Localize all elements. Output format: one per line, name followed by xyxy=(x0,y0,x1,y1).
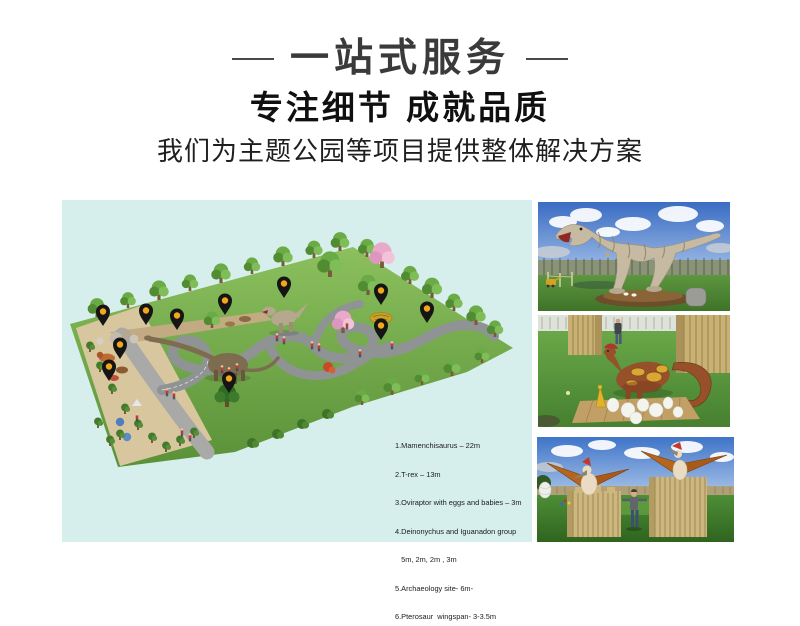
page: 一站式服务 专注细节 成就品质 我们为主题公园等项目提供整体解决方案 xyxy=(0,0,800,626)
tree-row xyxy=(538,260,730,276)
photo-trex xyxy=(538,202,730,311)
section-tagline: 我们为主题公园等项目提供整体解决方案 xyxy=(0,137,800,166)
title-right-rule xyxy=(526,58,568,60)
legend-item: 3.Oviraptor with eggs and babies – 3m xyxy=(395,498,531,508)
wood-pole-left xyxy=(568,315,602,355)
section-title-row: 一站式服务 xyxy=(0,38,800,81)
legend-item: 6.Pterosaur wingspan- 3-3.5m xyxy=(395,612,531,622)
legend-item: 5m, 2m, 2m , 3m xyxy=(395,555,531,565)
legend-item: 5.Archaeology site- 6m- xyxy=(395,584,531,594)
post-tower-right xyxy=(649,477,707,537)
section-subtitle: 专注细节 成就品质 xyxy=(0,90,800,126)
park-plan-image: 1.Mamenchisaurus – 22m 2.T-rex – 13m 3.O… xyxy=(62,200,532,542)
bright-horizon xyxy=(538,315,683,331)
title-left-rule xyxy=(232,58,274,60)
legend-item: 2.T-rex – 13m xyxy=(395,470,531,480)
rock xyxy=(686,288,706,306)
header: 一站式服务 专注细节 成就品质 我们为主题公园等项目提供整体解决方案 xyxy=(0,0,800,166)
legend-item: 4.Deinonychus and Iguanadon group xyxy=(395,527,531,537)
egg-sculpture xyxy=(539,482,551,498)
photo-dinosaur-eggs xyxy=(538,315,730,427)
legend-item: 1.Mamenchisaurus – 22m xyxy=(395,441,531,451)
flower xyxy=(566,391,570,395)
section-title: 一站式服务 xyxy=(290,38,510,81)
photo-pterosaurs xyxy=(537,437,734,542)
plan-legend: 1.Mamenchisaurus – 22m 2.T-rex – 13m 3.O… xyxy=(395,422,531,626)
